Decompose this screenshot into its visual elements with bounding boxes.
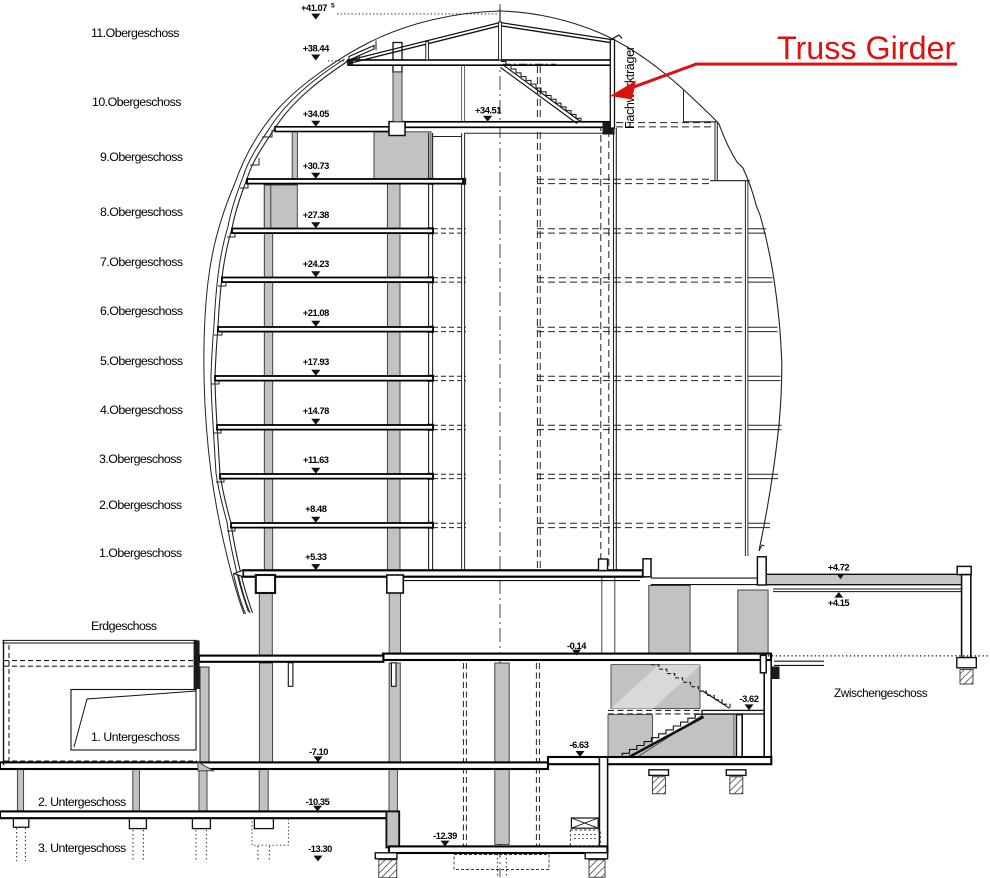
svg-text:+34.05: +34.05 bbox=[303, 109, 329, 119]
svg-text:5.Obergeschoss: 5.Obergeschoss bbox=[100, 354, 183, 368]
svg-text:3. Untergeschoss: 3. Untergeschoss bbox=[38, 841, 126, 855]
svg-text:+8.48: +8.48 bbox=[305, 504, 327, 514]
svg-text:2. Untergeschoss: 2. Untergeschoss bbox=[38, 795, 126, 809]
svg-text:+38.44: +38.44 bbox=[303, 44, 330, 54]
svg-text:-7.10: -7.10 bbox=[309, 747, 328, 757]
svg-text:+17.93: +17.93 bbox=[303, 357, 329, 367]
svg-text:7.Obergeschoss: 7.Obergeschoss bbox=[100, 255, 183, 269]
svg-text:Truss Girder: Truss Girder bbox=[777, 30, 955, 66]
svg-text:+24.23: +24.23 bbox=[303, 259, 329, 269]
svg-text:4.Obergeschoss: 4.Obergeschoss bbox=[100, 403, 183, 417]
svg-text:Zwischengeschoss: Zwischengeschoss bbox=[834, 686, 928, 700]
svg-text:+34.51: +34.51 bbox=[475, 106, 501, 116]
svg-text:3.Obergeschoss: 3.Obergeschoss bbox=[99, 452, 182, 466]
svg-text:-6.63: -6.63 bbox=[570, 740, 589, 750]
svg-text:-10.35: -10.35 bbox=[306, 797, 330, 807]
svg-text:11.Obergeschoss: 11.Obergeschoss bbox=[91, 26, 179, 40]
svg-text:10.Obergeschoss: 10.Obergeschoss bbox=[92, 95, 181, 109]
svg-text:8.Obergeschoss: 8.Obergeschoss bbox=[100, 205, 183, 219]
svg-text:9.Obergeschoss: 9.Obergeschoss bbox=[100, 150, 183, 164]
svg-text:-3.62: -3.62 bbox=[740, 694, 759, 704]
svg-text:+41.07: +41.07 bbox=[301, 3, 327, 13]
svg-text:+27.38: +27.38 bbox=[303, 210, 329, 220]
svg-text:Erdgeschoss: Erdgeschoss bbox=[91, 619, 157, 633]
svg-text:-13.30: -13.30 bbox=[308, 844, 332, 854]
svg-text:+5.33: +5.33 bbox=[305, 552, 327, 562]
svg-text:-0.14: -0.14 bbox=[567, 641, 587, 651]
svg-text:1.Obergeschoss: 1.Obergeschoss bbox=[99, 546, 182, 560]
svg-text:6.Obergeschoss: 6.Obergeschoss bbox=[100, 304, 183, 318]
svg-text:+4.72: +4.72 bbox=[828, 563, 850, 573]
svg-text:1. Untergeschoss: 1. Untergeschoss bbox=[91, 730, 180, 744]
svg-text:2.Obergeschoss: 2.Obergeschoss bbox=[99, 498, 182, 512]
svg-text:+14.78: +14.78 bbox=[303, 406, 329, 416]
svg-text:+4.15: +4.15 bbox=[828, 598, 850, 608]
svg-text:-12.39: -12.39 bbox=[433, 831, 457, 841]
svg-text:+21.08: +21.08 bbox=[303, 308, 329, 318]
svg-text:+11.63: +11.63 bbox=[303, 455, 329, 465]
svg-text:+30.73: +30.73 bbox=[303, 161, 329, 171]
